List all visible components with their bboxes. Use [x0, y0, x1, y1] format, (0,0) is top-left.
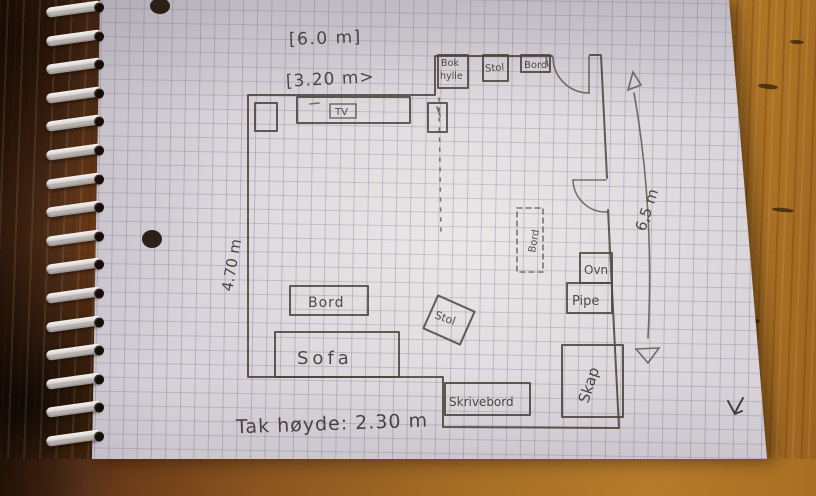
dimension-inner-width-label: [3.20 m>	[286, 67, 376, 92]
oven-label: Ovn	[584, 263, 608, 277]
dimension-top-width-label: [6.0 m]	[289, 27, 362, 50]
door-right-swing-arc	[573, 180, 607, 212]
door-top-swing-arc	[553, 57, 589, 93]
closet-label: Skap	[575, 365, 603, 405]
dimension-left-height-label: 4.70 m	[218, 238, 245, 293]
room-walls	[248, 55, 619, 428]
dimension-arrow-down	[636, 348, 659, 363]
photo-of-notebook: { "scene": { "description": "Hand-drawn …	[0, 0, 816, 459]
chimney-label: Pipe	[572, 294, 599, 309]
notebook-page: [6.0 m] [3.20 m> 4.70 m 6,5 m Tak høyde:…	[0, 0, 816, 459]
table-dashed-label: Bord	[527, 229, 542, 254]
chair-top-label: Stol	[485, 62, 505, 74]
floor-plan-sketch: [6.0 m] [3.20 m> 4.70 m 6,5 m Tak høyde:…	[0, 0, 816, 459]
tv-bench-outline	[297, 97, 410, 123]
bookshelf-label-line1: Bok	[441, 58, 459, 69]
bookshelf-label-line2: hylle	[440, 71, 463, 82]
table-top-label: Bord	[524, 60, 547, 71]
punch-hole-middle	[142, 230, 162, 248]
speaker-left-outline	[255, 103, 277, 131]
punch-hole-top	[150, 0, 170, 14]
tv-label: TV	[334, 107, 348, 118]
desk-label: Skrivebord	[449, 395, 514, 409]
dimension-right-height-label: 6,5 m	[632, 187, 662, 234]
pen-mark	[728, 398, 743, 414]
dimension-arrow-up	[628, 72, 641, 90]
ceiling-height-label: Tak høyde: 2.30 m	[235, 410, 429, 439]
dashed-divider-line	[439, 98, 441, 235]
sofa-label: Sofa	[297, 348, 353, 369]
chair-rotated-label: Stol	[433, 309, 457, 328]
notebook-page-wrap: [6.0 m] [3.20 m> 4.70 m 6,5 m Tak høyde:…	[0, 0, 816, 459]
coffee-table-label: Bord	[308, 295, 345, 311]
